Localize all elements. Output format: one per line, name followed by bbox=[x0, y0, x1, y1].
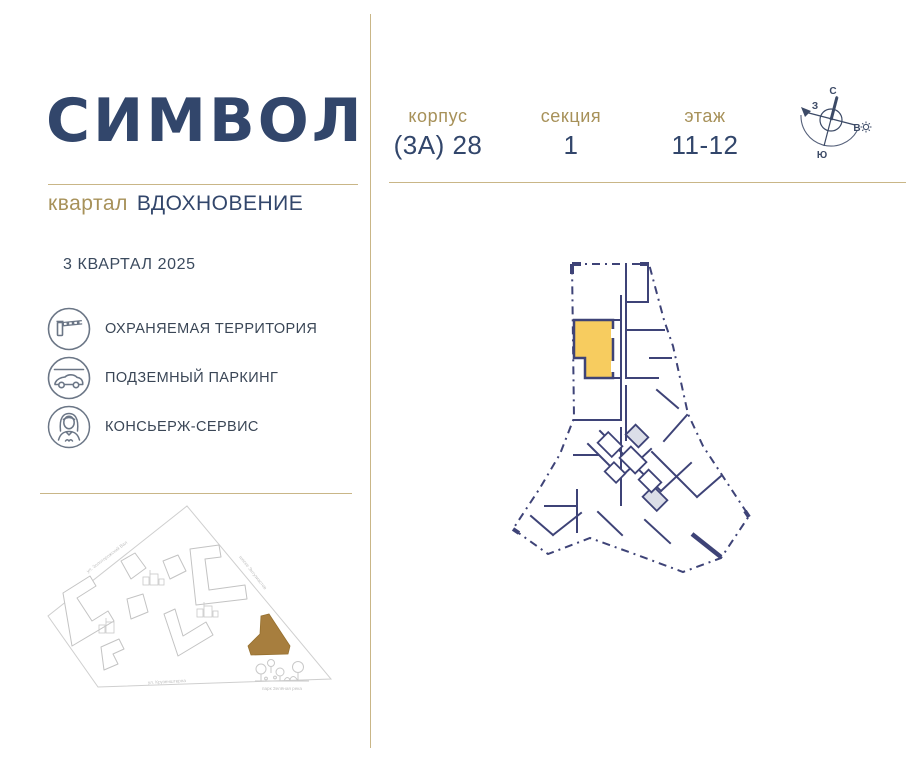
amenity-label: ПОДЗЕМНЫЙ ПАРКИНГ bbox=[105, 370, 278, 386]
etazh-value: 11-12 bbox=[658, 130, 752, 161]
korpus-label: корпус bbox=[390, 106, 486, 127]
vertical-divider bbox=[370, 14, 371, 748]
compass-west-label: З bbox=[812, 101, 818, 112]
compass-south-label: Ю bbox=[817, 150, 827, 161]
park-label: парк Зелёная река bbox=[262, 686, 302, 691]
car-icon bbox=[46, 355, 92, 401]
compass-rose-icon: С З В Ю bbox=[791, 84, 875, 170]
district-subtitle: кварталВДОХНОВЕНИЕ bbox=[48, 192, 303, 216]
barrier-icon bbox=[46, 306, 92, 352]
amenities-list: ОХРАНЯЕМАЯ ТЕРРИТОРИЯ ПОДЗЕМНЫЙ ПАРКИНГ bbox=[46, 306, 366, 453]
district-type-label: квартал bbox=[48, 192, 128, 215]
floor-plan bbox=[460, 235, 790, 595]
amenity-label: КОНСЬЕРЖ-СЕРВИС bbox=[105, 419, 259, 435]
logo-underline bbox=[48, 184, 358, 185]
park-trees bbox=[255, 660, 309, 682]
map-highlighted-building[interactable] bbox=[248, 614, 290, 655]
sektsiya-label: секция bbox=[524, 106, 618, 127]
compass-north-label: С bbox=[829, 86, 836, 97]
amenity-concierge: КОНСЬЕРЖ-СЕРВИС bbox=[46, 404, 366, 450]
page: СИМВОЛ кварталВДОХНОВЕНИЕ 3 КВАРТАЛ 2025… bbox=[0, 0, 922, 768]
floor-plan-outline bbox=[513, 264, 749, 572]
amenity-underground-parking: ПОДЗЕМНЫЙ ПАРКИНГ bbox=[46, 355, 366, 401]
brand-logo: СИМВОЛ bbox=[46, 86, 365, 156]
header-divider bbox=[389, 182, 906, 183]
korpus-value: (3А) 28 bbox=[390, 130, 486, 161]
sektsiya-value: 1 bbox=[524, 130, 618, 161]
district-name-label: ВДОХНОВЕНИЕ bbox=[137, 192, 303, 215]
etazh-label: этаж bbox=[658, 106, 752, 127]
completion-date: 3 КВАРТАЛ 2025 bbox=[63, 256, 196, 274]
street-label-top: ул. Золоторожский Вал bbox=[85, 539, 128, 574]
site-boundary bbox=[48, 506, 331, 687]
field-korpus: корпус (3А) 28 bbox=[390, 106, 486, 161]
field-sektsiya: секция 1 bbox=[524, 106, 618, 161]
amenity-secured-territory: ОХРАНЯЕМАЯ ТЕРРИТОРИЯ bbox=[46, 306, 366, 352]
site-buildings bbox=[63, 545, 247, 670]
site-map: ул. Золоторожский Вал шоссе Энтузиастов … bbox=[40, 500, 360, 715]
concierge-icon bbox=[46, 404, 92, 450]
amenity-label: ОХРАНЯЕМАЯ ТЕРРИТОРИЯ bbox=[105, 321, 317, 337]
compass-east-label: В bbox=[853, 123, 860, 134]
field-etazh: этаж 11-12 bbox=[658, 106, 752, 161]
map-divider bbox=[40, 493, 352, 494]
